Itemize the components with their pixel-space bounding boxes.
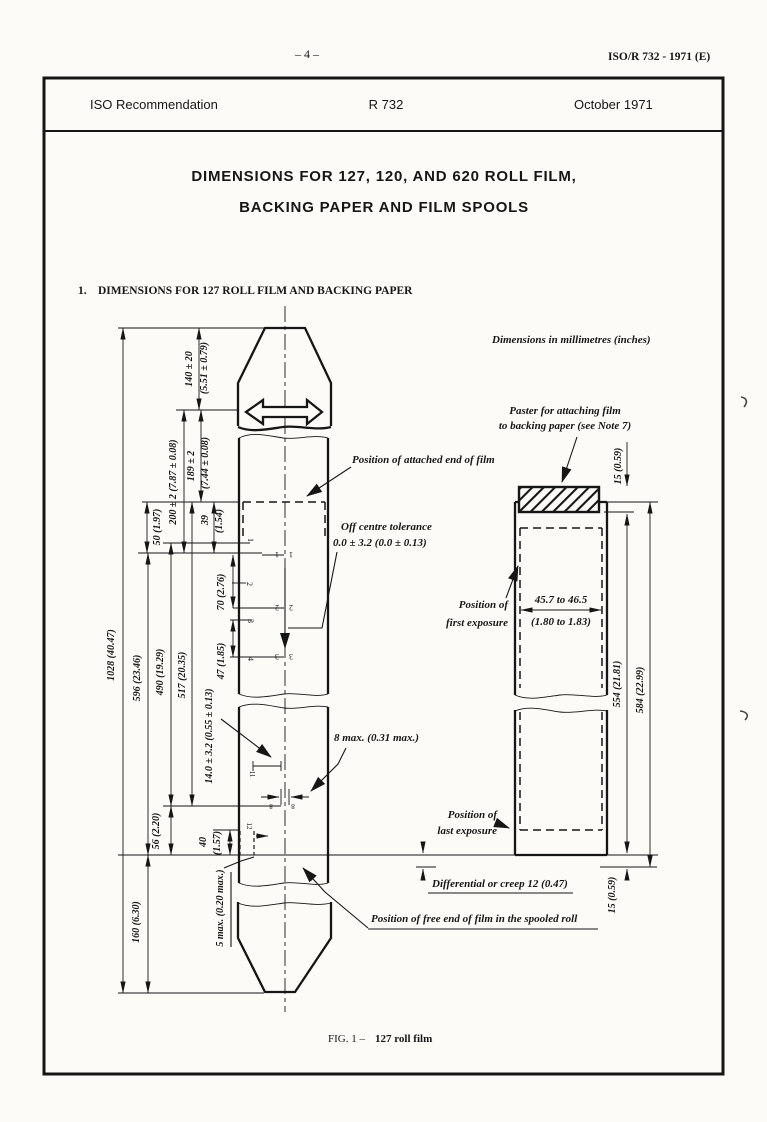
first-exposure-note-1: Position of xyxy=(459,599,510,611)
header-right: October 1971 xyxy=(574,97,653,112)
dim-47-label: 47 (1.85) xyxy=(216,643,227,681)
header-center: R 732 xyxy=(369,97,404,112)
frame-numbers: 1 2 3 4 1 1 2 2 3 3 11 8 8 12 xyxy=(245,538,295,830)
dim-39-in-label: (1.54) xyxy=(214,509,225,533)
page-header: – 4 – ISO/R 732 - 1971 (E) xyxy=(294,47,710,63)
frame-number: 2 xyxy=(289,603,293,612)
margin-mark xyxy=(741,397,746,407)
figure-caption: FIG. 1 – 127 roll film xyxy=(328,1033,432,1045)
units-note: Dimensions in millimetres (inches) xyxy=(491,334,651,346)
doc-title: DIMENSIONS FOR 127, 120, AND 620 ROLL FI… xyxy=(191,168,576,216)
dim-596-label: 596 (23.46) xyxy=(132,655,143,702)
film-width-mm-label: 45.7 to 46.5 xyxy=(534,594,588,606)
page-number: – 4 – xyxy=(294,47,320,61)
dim-160-label: 160 (6.30) xyxy=(131,901,142,943)
dim-5max-label: 5 max. (0.20 max.) xyxy=(215,869,226,946)
film-dashed-outline xyxy=(520,528,602,830)
dim-15-top-label: 15 (0.59) xyxy=(613,448,624,485)
dim-189-mm-label: 189 ± 2 xyxy=(186,451,197,482)
backing-strip-lower xyxy=(239,704,328,886)
paster-note-1: Paster for attaching film xyxy=(509,405,621,417)
dim-15-bottom-label: 15 (0.59) xyxy=(607,877,618,914)
spool-top-outline xyxy=(238,328,331,430)
dim-554-label: 554 (21.81) xyxy=(612,661,623,708)
frame-number: 1 xyxy=(289,550,293,559)
frame-number: 3 xyxy=(275,652,279,661)
margin-marks xyxy=(740,397,747,720)
left-annotations: Position of attached end of film Off cen… xyxy=(221,454,598,947)
frame-number: 1 xyxy=(246,538,255,542)
film-end-marks xyxy=(253,761,309,805)
dim-1028-label: 1028 (40.47) xyxy=(106,629,117,681)
frame-number: 12 xyxy=(245,823,253,831)
frame-number: 3 xyxy=(246,619,255,623)
dimension-labels: 1028 (40.47) 596 (23.46) 490 (19.29) 517… xyxy=(106,342,227,947)
film-strip-outline xyxy=(515,502,607,855)
dim-584-label: 584 (22.99) xyxy=(635,667,646,714)
off-centre-note-2: 0.0 ± 3.2 (0.0 ± 0.13) xyxy=(333,537,427,549)
dim-50-label: 50 (1.97) xyxy=(152,509,163,546)
first-exposure-note-2: first exposure xyxy=(446,617,508,629)
frame-number: 3 xyxy=(289,652,293,661)
dim-70-label: 70 (2.76) xyxy=(216,574,227,611)
last-exposure-note-1: Position of xyxy=(448,809,499,821)
frame-number: 2 xyxy=(275,603,279,612)
paster-patch xyxy=(519,487,599,512)
double-arrow-icon xyxy=(246,400,322,424)
dim-40-in-label: (1.57) xyxy=(212,831,223,855)
paster-note-2: to backing paper (see Note 7) xyxy=(499,420,631,432)
title-line-1: DIMENSIONS FOR 127, 120, AND 620 ROLL FI… xyxy=(191,168,576,185)
dim-490-label: 490 (19.29) xyxy=(155,649,166,697)
frame-number: 2 xyxy=(245,582,254,586)
header-left: ISO Recommendation xyxy=(90,97,218,112)
film-width-in-label: (1.80 to 1.83) xyxy=(531,616,591,628)
document-reference: ISO/R 732 - 1971 (E) xyxy=(608,51,710,63)
off-centre-note-1: Off centre tolerance xyxy=(341,521,432,533)
dim-56-label: 56 (2.20) xyxy=(151,813,162,850)
frame-number: 8 xyxy=(269,802,273,810)
dim-14-label: 14.0 ± 3.2 (0.55 ± 0.13) xyxy=(204,688,215,783)
8max-note: 8 max. (0.31 max.) xyxy=(334,732,419,744)
dim-140-in-label: (5.51 ± 0.79) xyxy=(199,342,210,394)
free-end-note: Position of free end of film in the spoo… xyxy=(371,913,578,925)
frame-number: 11 xyxy=(248,771,256,778)
creep-note: Differential or creep 12 (0.47) xyxy=(431,878,568,890)
frame-number: 4 xyxy=(246,657,255,661)
dim-200-label: 200 ± 2 (7.87 ± 0.08) xyxy=(168,439,179,525)
section-heading: 1. DIMENSIONS FOR 127 ROLL FILM AND BACK… xyxy=(78,285,651,346)
frame-number: 1 xyxy=(275,550,279,559)
document-page: – 4 – ISO/R 732 - 1971 (E) ISO Recommend… xyxy=(0,0,767,1122)
frame-number: 8 xyxy=(291,802,295,810)
caption-prefix: FIG. 1 – xyxy=(328,1033,365,1045)
caption-subject: 127 roll film xyxy=(375,1033,432,1045)
attached-end-note: Position of attached end of film xyxy=(352,454,495,466)
dim-140-mm-label: 140 ± 20 xyxy=(184,351,195,387)
last-exposure-note-2: last exposure xyxy=(437,825,497,837)
margin-mark xyxy=(740,711,747,720)
spool-bottom-outline xyxy=(238,902,331,992)
film-labels: Paster for attaching film to backing pap… xyxy=(428,405,646,913)
film-strip-figure: Paster for attaching film to backing pap… xyxy=(416,405,658,913)
dim-39-mm-label: 39 xyxy=(200,515,211,526)
dim-517-label: 517 (20.35) xyxy=(177,652,188,699)
title-line-2: BACKING PAPER AND FILM SPOOLS xyxy=(239,199,529,216)
figure-1-drawing: – 4 – ISO/R 732 - 1971 (E) ISO Recommend… xyxy=(0,0,767,1122)
dim-40-mm-label: 40 xyxy=(198,837,209,848)
section-number: 1. xyxy=(78,285,87,297)
title-block-row: ISO Recommendation R 732 October 1971 xyxy=(90,97,653,112)
dim-189-in-label: (7.44 ± 0.08) xyxy=(200,437,211,489)
section-title: DIMENSIONS FOR 127 ROLL FILM AND BACKING… xyxy=(98,285,413,297)
